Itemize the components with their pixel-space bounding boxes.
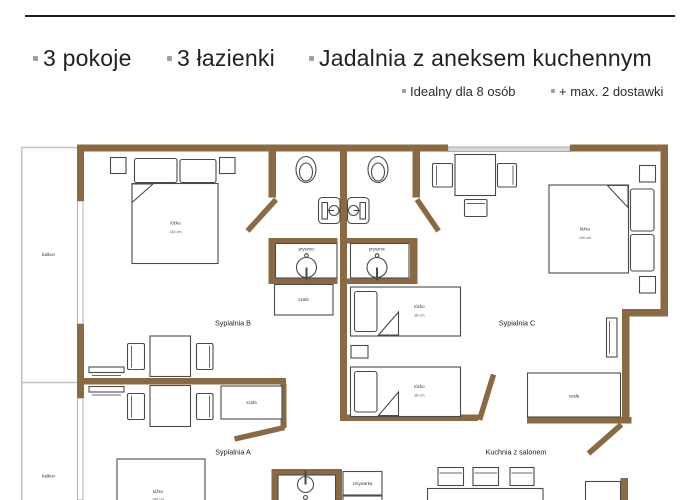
table bbox=[150, 336, 191, 377]
pillow bbox=[631, 189, 655, 231]
chair bbox=[197, 394, 214, 420]
bed-label: łóżko bbox=[414, 384, 425, 389]
pillow bbox=[180, 160, 216, 183]
toilet-icon bbox=[368, 157, 388, 183]
room-label-sypialnia-b: Sypialnia B bbox=[215, 319, 251, 328]
wardrobe-label: szafa bbox=[569, 394, 580, 399]
wall bbox=[269, 152, 277, 198]
counter bbox=[428, 489, 544, 500]
shower-label: prysznic bbox=[369, 247, 386, 252]
room-sypialnia-a: szafa Sypialnia A łóżko 140 cm bbox=[89, 386, 282, 500]
bar-stool bbox=[438, 468, 464, 486]
pillow bbox=[135, 159, 178, 183]
room-label-sypialnia-a: Sypialnia A bbox=[215, 448, 251, 457]
wall bbox=[347, 238, 413, 244]
chair bbox=[433, 164, 453, 188]
wardrobe-label: szafa bbox=[298, 297, 309, 302]
door-leaf bbox=[235, 428, 285, 440]
shelf bbox=[89, 387, 124, 393]
bed-size-label: 80 cm bbox=[414, 394, 424, 398]
mirror bbox=[607, 318, 618, 357]
wall bbox=[77, 324, 84, 398]
wall bbox=[410, 238, 418, 284]
wall bbox=[269, 238, 338, 244]
bathroom-2: prysznic bbox=[348, 157, 410, 281]
chair bbox=[128, 344, 145, 370]
wall bbox=[347, 279, 413, 285]
chair bbox=[465, 200, 488, 217]
door-leaf bbox=[417, 200, 439, 232]
wall bbox=[622, 309, 630, 424]
wall bbox=[77, 145, 448, 152]
floorplan-page: 3 pokoje 3 łazienki Jadalnia z aneksem k… bbox=[0, 0, 700, 500]
bed-size-label: 140 cm bbox=[169, 230, 181, 234]
wall bbox=[77, 145, 84, 202]
bed-size-label: 140 cm bbox=[579, 236, 591, 240]
shelf bbox=[89, 367, 124, 373]
room-sypialnia-c: łóżko 140 cm łóżko 80 cm łóżko 80 cm sza… bbox=[351, 155, 656, 418]
door-leaf bbox=[248, 200, 277, 232]
bed-size-label: 80 cm bbox=[414, 314, 424, 318]
window bbox=[78, 201, 84, 324]
room-label-kuchnia: Kuchnia z salonem bbox=[486, 448, 547, 457]
chair bbox=[128, 394, 145, 420]
bathroom-3 bbox=[278, 471, 336, 500]
toilet-icon bbox=[296, 157, 316, 183]
nightstand bbox=[220, 158, 236, 174]
window bbox=[78, 398, 84, 500]
room-kuchnia: Kuchnia z salonem zmywarka bbox=[343, 448, 621, 500]
pillow bbox=[631, 235, 655, 272]
fridge bbox=[586, 482, 621, 500]
pillow bbox=[355, 292, 378, 332]
bathroom-1: prysznic bbox=[276, 157, 341, 281]
pillow bbox=[355, 372, 378, 413]
entrance-door-leaf bbox=[589, 425, 622, 454]
wall bbox=[269, 279, 338, 285]
balcony-outline bbox=[22, 148, 78, 500]
wall bbox=[272, 469, 279, 500]
bar-stool bbox=[510, 468, 534, 486]
shower-label: prysznic bbox=[298, 247, 315, 252]
window bbox=[448, 147, 570, 152]
chair bbox=[498, 164, 517, 188]
balcony: balkon balkon bbox=[22, 148, 78, 500]
wall bbox=[269, 238, 276, 284]
room-label-sypialnia-c: Sypialnia C bbox=[499, 319, 535, 328]
nightstand bbox=[640, 277, 656, 294]
nightstand bbox=[351, 346, 368, 359]
cabinet bbox=[343, 496, 382, 500]
wall bbox=[336, 469, 343, 500]
floorplan-drawing: balkon balkon bbox=[0, 0, 700, 500]
wall bbox=[621, 478, 629, 500]
wall bbox=[661, 145, 669, 317]
wardrobe-label: szafa bbox=[246, 400, 257, 405]
wall bbox=[340, 152, 347, 420]
wall bbox=[570, 145, 668, 152]
wall bbox=[413, 152, 421, 198]
table bbox=[455, 155, 496, 196]
balcony-label: balkon bbox=[42, 252, 55, 257]
door-leaf bbox=[480, 375, 494, 421]
nightstand bbox=[111, 158, 127, 174]
table bbox=[150, 386, 191, 427]
nightstand bbox=[640, 166, 656, 183]
bar-stool bbox=[473, 468, 499, 486]
bed-label: łóżko bbox=[153, 489, 164, 494]
bed-label: łóżko bbox=[414, 304, 425, 309]
wall bbox=[77, 378, 286, 385]
bed-label: łóżko bbox=[580, 227, 591, 232]
balcony-label: balkon bbox=[42, 474, 55, 479]
wall bbox=[527, 417, 632, 424]
chair bbox=[197, 344, 214, 370]
bed-label: łóżko bbox=[170, 221, 181, 226]
dishwasher-label: zmywarka bbox=[353, 481, 373, 486]
